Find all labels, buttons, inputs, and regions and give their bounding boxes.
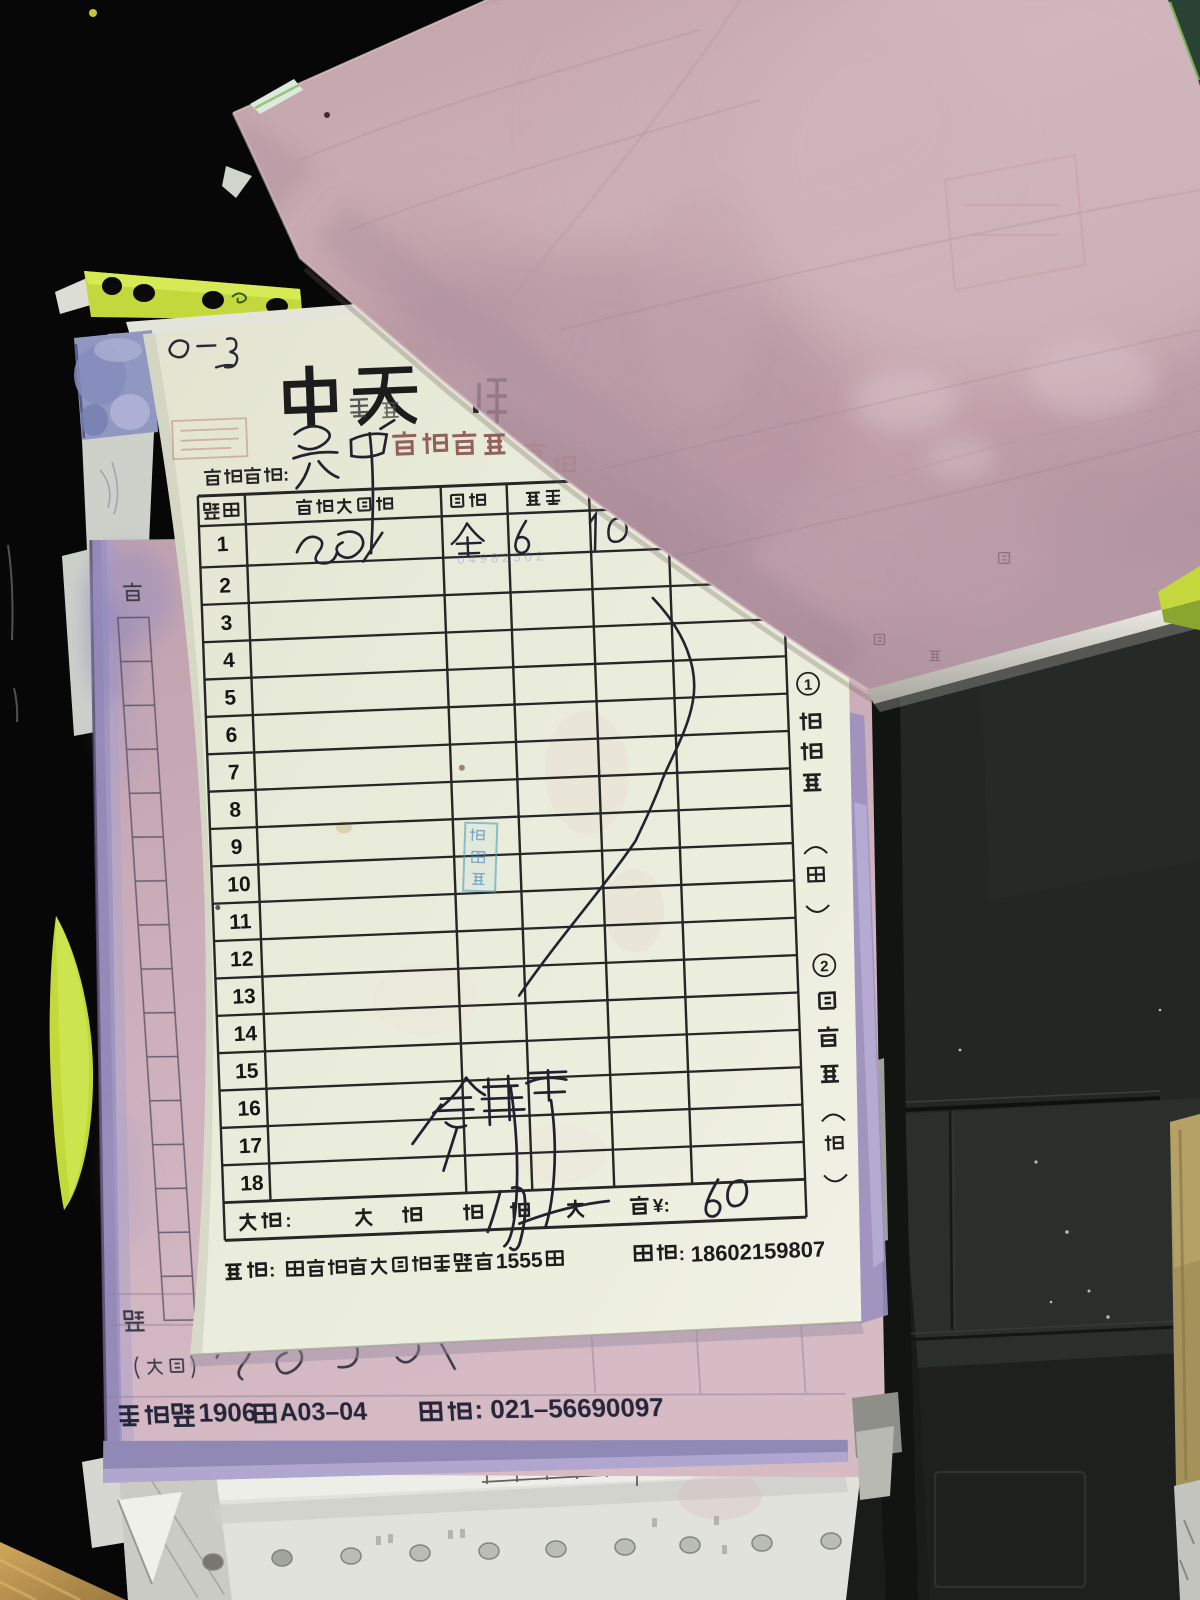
svg-text:16: 16	[237, 1097, 261, 1121]
svg-text::: :	[283, 465, 290, 485]
svg-text:4: 4	[223, 649, 236, 672]
svg-text:1906: 1906	[197, 1397, 257, 1428]
svg-text:2: 2	[820, 958, 829, 975]
svg-text:6: 6	[225, 724, 238, 747]
svg-text:1555: 1555	[495, 1249, 543, 1274]
svg-text:9: 9	[230, 836, 243, 859]
svg-text:: 021–56690097: : 021–56690097	[473, 1392, 664, 1424]
svg-text::: :	[285, 1211, 292, 1232]
svg-text:12: 12	[230, 948, 254, 972]
svg-text::: :	[269, 1260, 276, 1281]
svg-text:8: 8	[229, 798, 242, 821]
svg-text:11: 11	[229, 910, 252, 934]
svg-text:1: 1	[804, 677, 813, 694]
svg-text:17: 17	[238, 1134, 262, 1158]
svg-text:2: 2	[219, 574, 232, 597]
svg-text:10: 10	[227, 873, 251, 897]
svg-text:5: 5	[224, 686, 237, 709]
svg-text:3: 3	[220, 612, 233, 635]
svg-text:18: 18	[240, 1172, 264, 1196]
svg-text:¥:: ¥:	[653, 1196, 671, 1218]
svg-text:15: 15	[235, 1060, 259, 1084]
svg-text:A03–04: A03–04	[279, 1398, 369, 1427]
svg-text::: :	[678, 1244, 685, 1265]
svg-text:13: 13	[232, 985, 256, 1009]
svg-text:7: 7	[228, 761, 241, 784]
svg-text:14: 14	[233, 1022, 257, 1046]
svg-text:1: 1	[216, 533, 229, 556]
